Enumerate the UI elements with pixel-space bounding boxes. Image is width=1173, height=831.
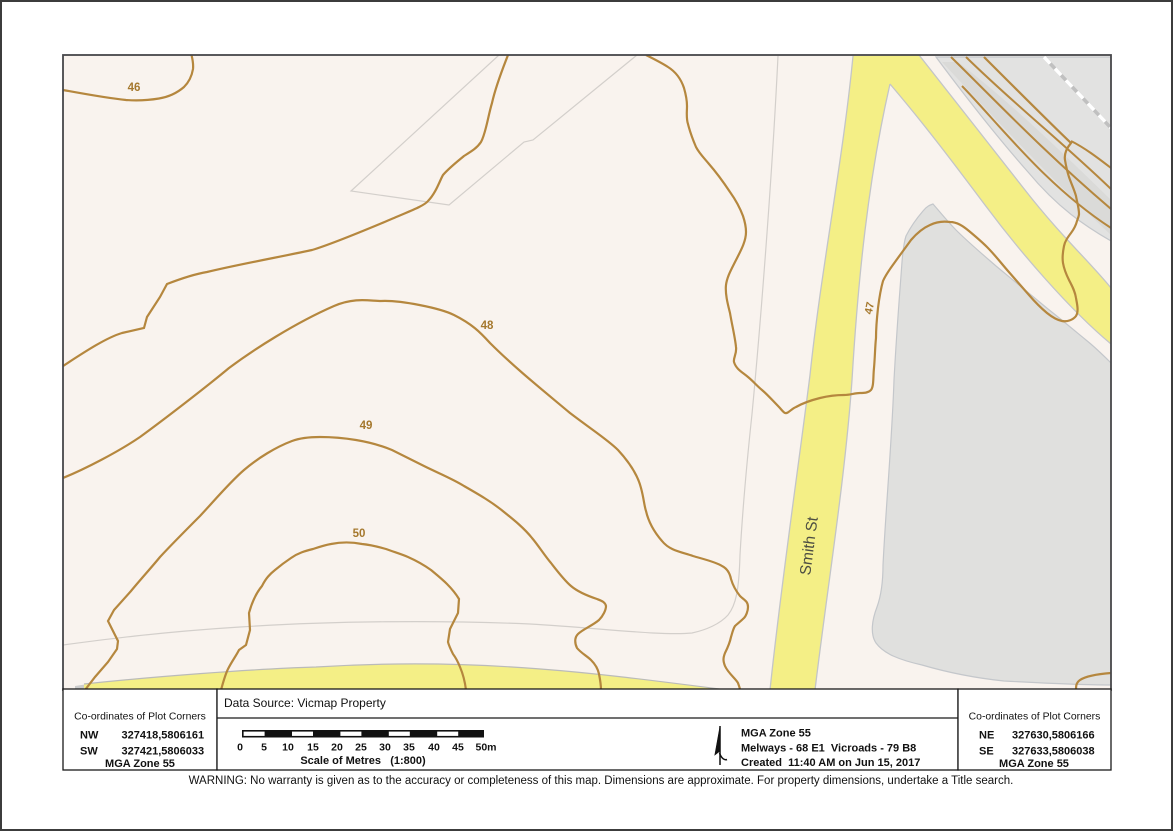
svg-text:NW: NW [80, 730, 99, 742]
svg-text:10: 10 [282, 742, 294, 754]
svg-text:MGA Zone 55: MGA Zone 55 [741, 728, 811, 740]
svg-text:327418,5806161: 327418,5806161 [122, 730, 205, 742]
svg-text:48: 48 [481, 320, 494, 332]
svg-text:SW: SW [80, 746, 98, 758]
svg-text:30: 30 [379, 742, 391, 754]
svg-text:SE: SE [979, 746, 994, 758]
svg-text:50m: 50m [475, 742, 496, 754]
svg-text:327630,5806166: 327630,5806166 [1012, 730, 1095, 742]
svg-text:Data Source: Vicmap Property: Data Source: Vicmap Property [224, 696, 386, 710]
svg-text:35: 35 [403, 742, 415, 754]
svg-text:47: 47 [863, 301, 877, 315]
svg-text:Co-ordinates of Plot Corners: Co-ordinates of Plot Corners [969, 712, 1101, 723]
svg-text:Created 11:40 AM on Jun 15, 2: Created 11:40 AM on Jun 15, 2017 [741, 757, 920, 769]
svg-text:49: 49 [360, 420, 373, 432]
svg-text:327633,5806038: 327633,5806038 [1012, 746, 1095, 758]
svg-text:NE: NE [979, 730, 994, 742]
svg-text:40: 40 [428, 742, 440, 754]
svg-text:50: 50 [353, 528, 366, 540]
svg-text:5: 5 [261, 742, 267, 754]
svg-text:Co-ordinates of Plot Corners: Co-ordinates of Plot Corners [74, 712, 206, 723]
svg-text:15: 15 [307, 742, 319, 754]
svg-text:45: 45 [452, 742, 464, 754]
svg-text:20: 20 [331, 742, 343, 754]
svg-text:MGA Zone 55: MGA Zone 55 [105, 758, 175, 770]
svg-text:46: 46 [128, 82, 141, 94]
svg-text:327421,5806033: 327421,5806033 [122, 746, 205, 758]
svg-text:WARNING: No warranty is given: WARNING: No warranty is given as to the … [189, 775, 1014, 787]
svg-text:0: 0 [237, 742, 243, 754]
svg-text:MGA Zone 55: MGA Zone 55 [999, 758, 1069, 770]
svg-text:Melways - 68 E1 Vicroads - 79: Melways - 68 E1 Vicroads - 79 B8 [741, 743, 916, 755]
svg-text:25: 25 [355, 742, 367, 754]
svg-text:Scale of Metres (1:800): Scale of Metres (1:800) [300, 755, 426, 767]
